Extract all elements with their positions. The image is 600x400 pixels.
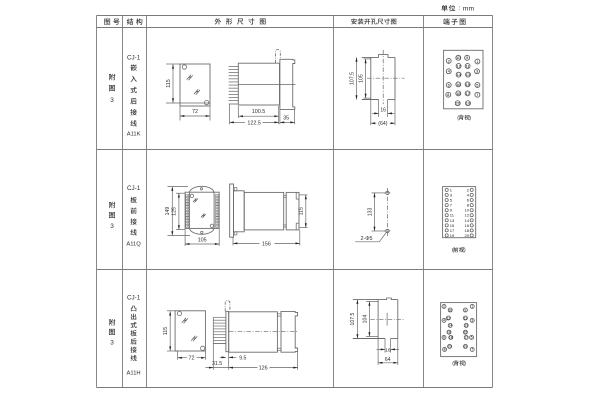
svg-text:16: 16 bbox=[447, 330, 451, 334]
svg-text:8: 8 bbox=[444, 348, 446, 352]
svg-text:3: 3 bbox=[110, 223, 114, 230]
svg-text:5: 5 bbox=[471, 336, 473, 340]
svg-text:12: 12 bbox=[446, 316, 450, 320]
svg-text:105: 105 bbox=[358, 74, 364, 83]
svg-text:16: 16 bbox=[380, 108, 386, 114]
svg-text:(: ( bbox=[452, 248, 454, 254]
svg-text:A11Q: A11Q bbox=[126, 242, 141, 248]
svg-text:19: 19 bbox=[450, 233, 455, 238]
svg-text:20: 20 bbox=[465, 233, 470, 238]
svg-text:100.5: 100.5 bbox=[252, 109, 266, 115]
svg-text::: : bbox=[458, 5, 460, 12]
svg-text:20: 20 bbox=[455, 101, 460, 106]
svg-text:): ) bbox=[464, 361, 466, 367]
svg-text:mm: mm bbox=[463, 6, 475, 13]
svg-text:19: 19 bbox=[463, 345, 467, 349]
svg-text:3: 3 bbox=[110, 97, 114, 104]
svg-text:): ) bbox=[464, 248, 466, 254]
svg-text:2-Φ5: 2-Φ5 bbox=[360, 236, 372, 242]
svg-text:18: 18 bbox=[456, 91, 461, 96]
svg-text:133: 133 bbox=[367, 208, 373, 217]
svg-text:A11K: A11K bbox=[127, 131, 141, 137]
svg-text:105: 105 bbox=[198, 237, 207, 243]
svg-text:149: 149 bbox=[165, 207, 171, 216]
svg-text:107.5: 107.5 bbox=[349, 72, 355, 85]
svg-text:126: 126 bbox=[259, 365, 268, 371]
svg-text:A11H: A11H bbox=[127, 371, 141, 377]
svg-text:10: 10 bbox=[456, 55, 461, 60]
svg-text:(64): (64) bbox=[378, 121, 387, 127]
svg-text:115: 115 bbox=[299, 207, 305, 215]
svg-text:13: 13 bbox=[466, 72, 471, 77]
svg-text:13: 13 bbox=[464, 324, 468, 328]
svg-text:20: 20 bbox=[448, 345, 452, 349]
svg-text:18: 18 bbox=[449, 336, 453, 340]
svg-text:15: 15 bbox=[463, 330, 467, 334]
svg-text:16: 16 bbox=[456, 82, 461, 87]
svg-text:10: 10 bbox=[448, 308, 452, 312]
svg-text:9.5: 9.5 bbox=[239, 355, 246, 361]
svg-text:(: ( bbox=[452, 361, 454, 367]
svg-text:1: 1 bbox=[471, 305, 473, 309]
svg-text:): ) bbox=[469, 115, 471, 121]
svg-text:CJ-1: CJ-1 bbox=[127, 294, 141, 301]
svg-text:3: 3 bbox=[110, 340, 114, 347]
svg-text:104: 104 bbox=[362, 315, 368, 324]
svg-text:6: 6 bbox=[443, 336, 445, 340]
svg-text:115: 115 bbox=[166, 79, 172, 88]
svg-text:35: 35 bbox=[283, 116, 289, 122]
svg-text:16: 16 bbox=[385, 347, 391, 353]
svg-text:9: 9 bbox=[464, 308, 466, 312]
svg-text:72: 72 bbox=[189, 356, 195, 362]
svg-text:2: 2 bbox=[443, 305, 445, 309]
svg-text:156: 156 bbox=[262, 241, 271, 247]
svg-text:122.5: 122.5 bbox=[247, 120, 261, 126]
svg-text:125: 125 bbox=[172, 207, 178, 216]
svg-text:72: 72 bbox=[192, 109, 198, 115]
svg-text:115: 115 bbox=[163, 327, 169, 335]
svg-text:14: 14 bbox=[448, 324, 452, 328]
svg-text:11: 11 bbox=[464, 316, 468, 320]
svg-text:CJ-1: CJ-1 bbox=[127, 54, 141, 61]
svg-text:7: 7 bbox=[471, 348, 473, 352]
svg-text:12: 12 bbox=[456, 63, 461, 68]
svg-text:64: 64 bbox=[385, 357, 391, 363]
svg-text:4: 4 bbox=[443, 319, 445, 323]
svg-text:19: 19 bbox=[466, 101, 471, 106]
svg-text:17: 17 bbox=[464, 336, 468, 340]
svg-text:14: 14 bbox=[456, 72, 461, 77]
svg-text:17: 17 bbox=[465, 91, 470, 96]
svg-text:15: 15 bbox=[465, 82, 470, 87]
svg-text:3: 3 bbox=[471, 319, 473, 323]
svg-text:(: ( bbox=[457, 115, 459, 121]
svg-text:CJ-1: CJ-1 bbox=[127, 185, 141, 192]
svg-text:107.5: 107.5 bbox=[350, 312, 356, 325]
